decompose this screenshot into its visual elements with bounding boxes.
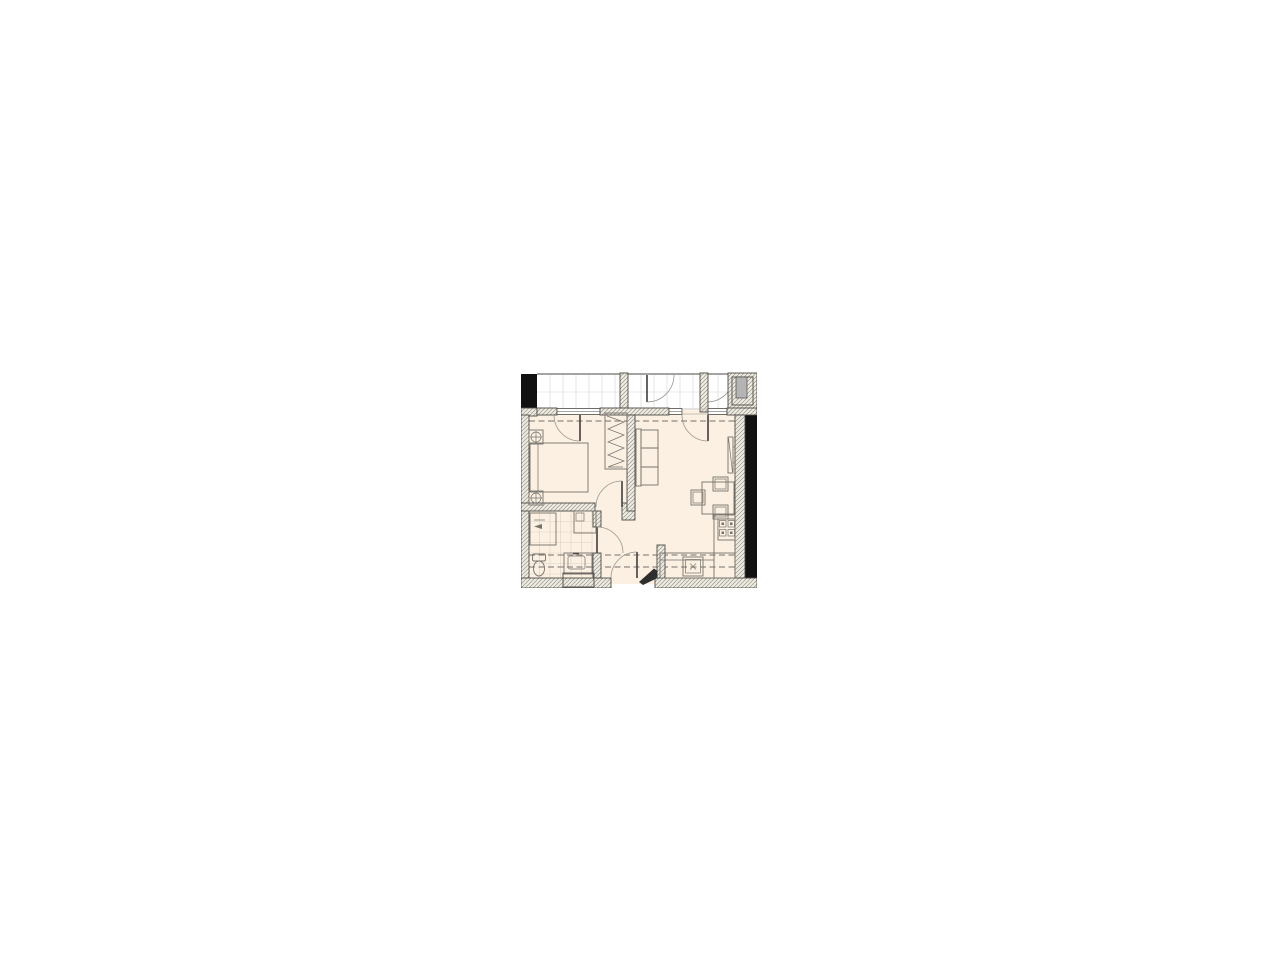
- wall-segment: [600, 408, 669, 415]
- wall-bedroom-bathroom: [521, 503, 595, 511]
- page-background: [0, 0, 1280, 960]
- structural-pier: [700, 373, 708, 412]
- burner-icon: [722, 532, 725, 535]
- living-window-right: [708, 409, 727, 415]
- burner-icon: [730, 532, 733, 535]
- floor-plan: [521, 372, 757, 588]
- wall-segment: [537, 408, 557, 415]
- burner-icon: [730, 523, 733, 526]
- exterior-wall-mass-left: [521, 374, 537, 412]
- burner-icon: [722, 523, 725, 526]
- balcony-corridor: [537, 373, 757, 412]
- wall-kitchen-pier: [657, 545, 665, 578]
- corridor-door-left: [647, 375, 674, 402]
- duct-marker: [736, 377, 747, 398]
- wall-bathroom-upper: [593, 511, 601, 527]
- wall-segment: [727, 408, 757, 415]
- wall-bottom-right: [655, 578, 757, 588]
- wall-left: [521, 415, 529, 588]
- utility-shaft: [728, 373, 757, 409]
- wall-bedroom-living: [627, 415, 635, 511]
- living-window-left: [669, 409, 682, 415]
- wall-right: [735, 415, 745, 578]
- structural-pier: [620, 373, 628, 412]
- wall-bottom-left: [521, 578, 611, 588]
- floor-plan-drawing: [521, 372, 757, 588]
- corridor-tile-grid: [537, 375, 728, 408]
- bedroom-window: [557, 409, 600, 415]
